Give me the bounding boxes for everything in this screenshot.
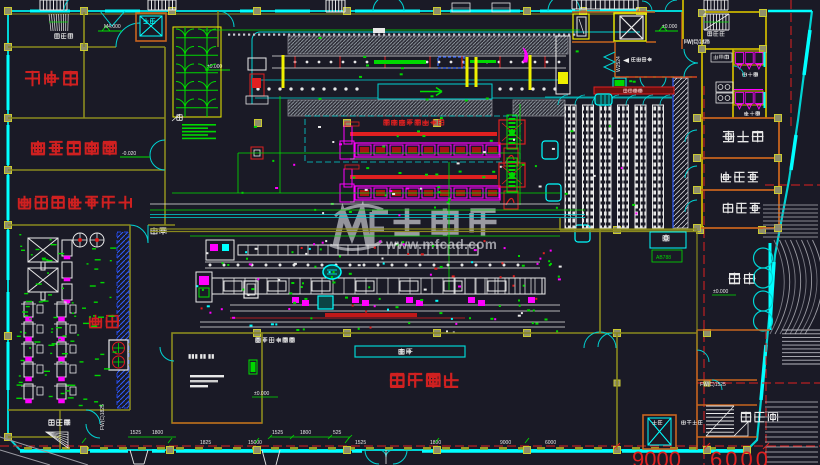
svg-text:1800: 1800: [152, 430, 163, 436]
svg-text:1800: 1800: [430, 440, 441, 446]
svg-text:▮▮▮ ▮▮ ▮▮: ▮▮▮ ▮▮ ▮▮: [188, 354, 214, 360]
svg-text:W2524: W2524: [616, 56, 622, 72]
svg-text:-0.020: -0.020: [122, 151, 136, 157]
svg-text:6000: 6000: [710, 447, 771, 465]
svg-text:FW(C)1525: FW(C)1525: [700, 382, 726, 388]
svg-text:1525: 1525: [272, 430, 283, 436]
svg-text:FW(C)1825: FW(C)1825: [100, 404, 106, 430]
svg-text:AB788: AB788: [656, 255, 671, 261]
svg-text:9000: 9000: [500, 440, 511, 446]
svg-text:1825: 1825: [200, 440, 211, 446]
svg-text:1525: 1525: [355, 440, 366, 446]
svg-text:M4.000: M4.000: [104, 24, 121, 30]
svg-text:525: 525: [333, 430, 342, 436]
svg-text:±0.000: ±0.000: [662, 24, 677, 30]
svg-text:±0.000: ±0.000: [713, 289, 728, 295]
svg-text:FW(C)1825: FW(C)1825: [684, 40, 710, 46]
svg-text:1525: 1525: [130, 430, 141, 436]
svg-text:1800: 1800: [300, 430, 311, 436]
svg-text:9000: 9000: [632, 447, 681, 465]
svg-text:±0.000: ±0.000: [254, 391, 269, 397]
svg-text:6000: 6000: [545, 440, 556, 446]
